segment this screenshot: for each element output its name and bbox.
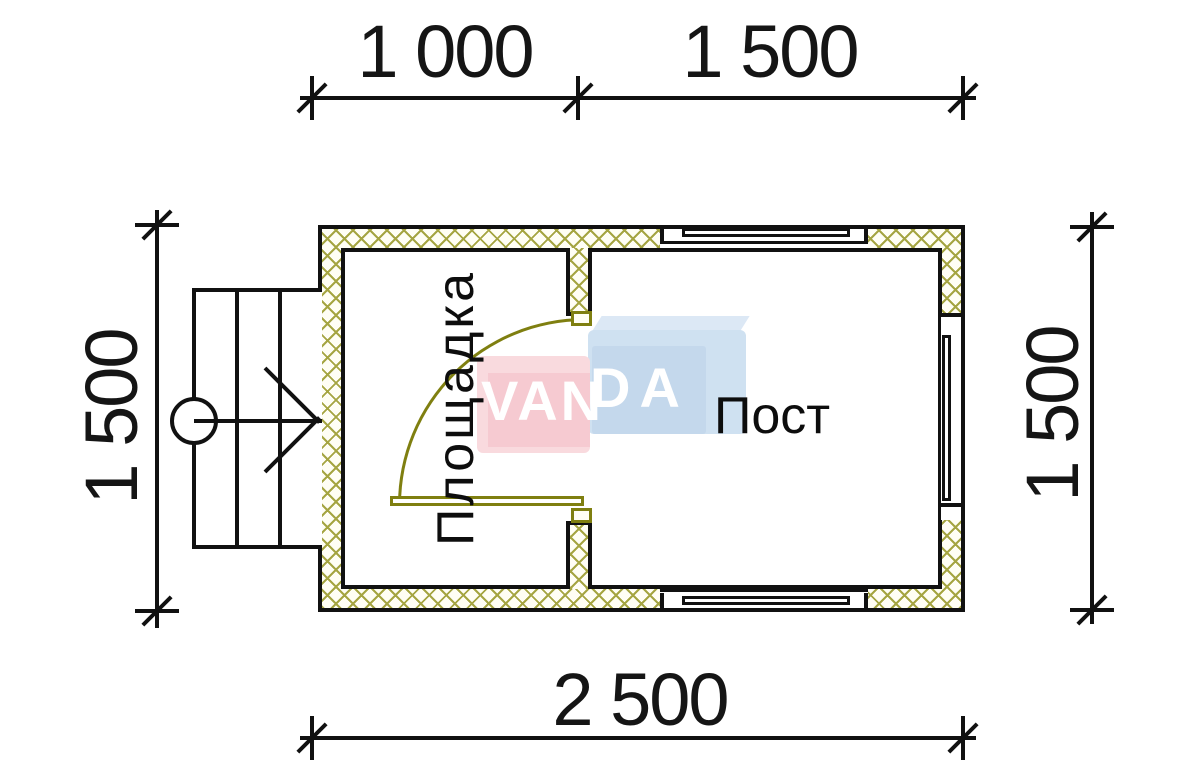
door-jamb-bottom xyxy=(571,508,592,523)
dimension-tick xyxy=(941,76,985,120)
dimension-label-right: 1 500 xyxy=(1016,326,1090,501)
window-bottom-jamb-right xyxy=(864,593,868,608)
stair-direction-arrow-shaft xyxy=(194,419,322,423)
floor-plan-canvas: 1 000 1 500 2 500 1 500 1 500 xyxy=(0,0,1200,772)
watermark-text-van: VAN xyxy=(481,373,604,429)
dimension-tick xyxy=(556,76,600,120)
window-right-sill-line xyxy=(941,503,961,507)
watermark-text-da: DA xyxy=(590,360,689,416)
door-jamb-top xyxy=(571,311,592,326)
dimension-label-top-left: 1 000 xyxy=(357,15,532,89)
dimension-tick xyxy=(135,203,179,247)
room-label-ploshchadka: Площадка xyxy=(430,270,482,546)
dimension-tick xyxy=(290,76,334,120)
dimension-label-top-right: 1 500 xyxy=(682,15,857,89)
dimension-line-top xyxy=(300,96,976,100)
dimension-line-left xyxy=(155,210,159,628)
window-bottom-sill-line xyxy=(660,589,868,592)
room-label-post: Пост xyxy=(714,390,830,442)
dimension-tick xyxy=(290,716,334,760)
partition-wall-lower xyxy=(566,521,592,589)
dimension-tick xyxy=(941,716,985,760)
window-bottom-frame xyxy=(682,596,850,605)
window-right-frame xyxy=(942,335,951,501)
dimension-tick xyxy=(1070,588,1114,632)
window-bottom-jamb-left xyxy=(660,593,664,608)
dimension-tick xyxy=(135,589,179,633)
partition-wall-upper xyxy=(566,248,592,316)
dimension-label-left: 1 500 xyxy=(75,329,149,504)
dimension-label-bottom: 2 500 xyxy=(552,663,727,737)
window-right-head-line xyxy=(941,313,961,317)
dimension-tick xyxy=(1070,205,1114,249)
window-top-sill-line xyxy=(660,241,868,244)
window-top-frame xyxy=(682,228,850,237)
door-leaf xyxy=(390,496,584,506)
